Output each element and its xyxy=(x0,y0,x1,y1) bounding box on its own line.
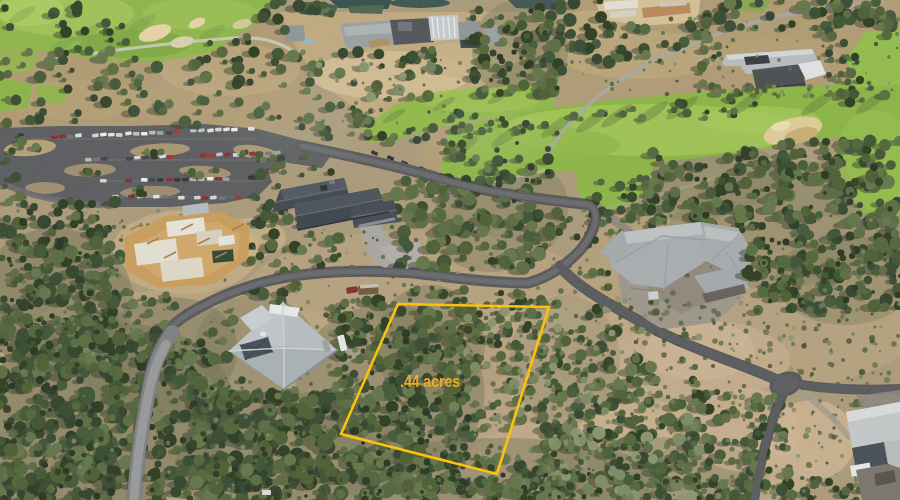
svg-text:.44 acres: .44 acres xyxy=(400,373,460,390)
